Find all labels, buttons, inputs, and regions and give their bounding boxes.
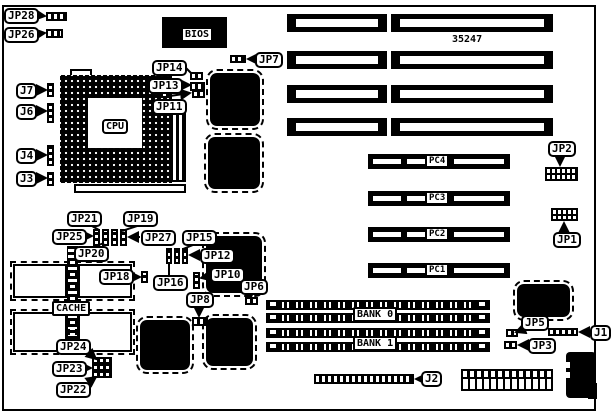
isa-slot-3-left: [287, 85, 387, 103]
jp26-jumper: [46, 29, 63, 38]
jp19-jumper-col2: [120, 229, 127, 246]
jp7-callout: JP7: [255, 52, 283, 68]
cpu-label: CPU: [102, 119, 128, 134]
cache-label: CACHE: [52, 301, 90, 316]
bank0-label: BANK 0: [353, 307, 397, 322]
isa-slot-3-right: [391, 85, 553, 103]
jp14-callout: JP14: [152, 60, 187, 76]
jp12-jumper: [182, 248, 188, 264]
cache-bus-trace: [67, 246, 78, 352]
power-connector: [461, 369, 553, 391]
jp21-callout: JP21: [67, 211, 102, 227]
qfp-chip-4: [140, 320, 190, 370]
jp6-jumper: [245, 297, 258, 305]
jp11-callout: JP11: [152, 99, 187, 115]
jp15-jumper-col1: [166, 248, 172, 264]
j7-jumper: [47, 83, 54, 97]
j2-callout: J2: [421, 371, 442, 387]
jp3-callout: JP3: [528, 338, 556, 354]
jp1-callout: JP1: [553, 232, 581, 248]
pc1-label: PC1: [425, 263, 449, 277]
isa-slot-1-left: [287, 14, 387, 32]
jp8-callout: JP8: [186, 292, 214, 308]
jp14-jumper: [190, 72, 203, 80]
motherboard-diagram: 35247 PC4 PC3 PC2 PC1 BIOS CPU CACHE BAN…: [0, 0, 613, 415]
jp11-jumper: [192, 90, 205, 98]
qfp-chip-jp5: [517, 284, 570, 317]
jp19-callout: JP19: [123, 211, 158, 227]
pc3-label: PC3: [425, 191, 449, 205]
pci-slot-pc1: PC1: [368, 263, 510, 278]
jp22-callout: JP22: [56, 382, 91, 398]
jp10-jumper: [193, 272, 200, 289]
pci-slot-pc2: PC2: [368, 227, 510, 242]
jp21-jumper-col2: [102, 229, 109, 246]
jp27-callout: JP27: [141, 230, 176, 246]
jp19-jumper-col1: [111, 229, 118, 246]
isa-slot-2-right: [391, 51, 553, 69]
jp20-callout: JP20: [74, 246, 109, 262]
j2-header: [314, 374, 414, 384]
jp22-jp24-jumper-row1: [92, 357, 112, 364]
jp1-header: [551, 208, 578, 221]
jp13-callout: JP13: [148, 78, 183, 94]
qfp-chip-1: [210, 73, 260, 126]
j1-callout: J1: [590, 325, 611, 341]
pci-slot-pc4: PC4: [368, 154, 510, 169]
jp24-callout: JP24: [56, 339, 91, 355]
pc4-label: PC4: [425, 154, 449, 168]
bank1-label: BANK 1: [353, 336, 397, 351]
pc2-label: PC2: [425, 227, 449, 241]
qfp-chip-5: [206, 318, 253, 366]
jp22-jp24-jumper-row3: [92, 371, 112, 378]
jp5-callout: JP5: [521, 315, 549, 331]
qfp-chip-2: [208, 137, 260, 189]
jp28-callout: JP28: [4, 8, 39, 24]
jp21-jumper-col1: [93, 229, 100, 246]
jp22-jp24-jumper-row2: [92, 364, 112, 371]
jp7-jumper: [230, 55, 246, 63]
j4-jumper: [47, 145, 54, 166]
jp10-callout: JP10: [210, 267, 245, 283]
jp18-jumper: [141, 271, 148, 283]
part-number-label: 35247: [452, 34, 482, 45]
pci-slot-pc3: PC3: [368, 191, 510, 206]
cache-chip-1: [13, 264, 67, 298]
j3-callout: J3: [16, 171, 37, 187]
jp3-jumper: [504, 341, 517, 349]
jp5-jumper: [506, 329, 518, 337]
j7-callout: J7: [16, 83, 37, 99]
jp2-callout: JP2: [548, 141, 576, 157]
jp6-callout: JP6: [240, 279, 268, 295]
jp18-callout: JP18: [99, 269, 134, 285]
jp15-callout: JP15: [182, 230, 217, 246]
j3-jumper: [47, 172, 54, 186]
jp15-jumper-col2: [174, 248, 180, 264]
cpu-side-module: [171, 104, 186, 182]
jp28-jumper: [46, 12, 67, 21]
j1-header: [548, 328, 578, 336]
jp23-callout: JP23: [52, 361, 87, 377]
jp16-callout: JP16: [153, 275, 188, 291]
jp12-callout: JP12: [200, 248, 235, 264]
jp25-callout: JP25: [52, 229, 87, 245]
isa-slot-4-right: [391, 118, 553, 136]
j6-jumper: [47, 103, 54, 123]
cpu-socket-bottom-bar: [74, 184, 186, 193]
keyboard-din-connector: [566, 352, 596, 398]
isa-slot-2-left: [287, 51, 387, 69]
isa-slot-1-right: [391, 14, 553, 32]
jp26-callout: JP26: [4, 27, 39, 43]
j4-callout: J4: [16, 148, 37, 164]
jp8-jumper: [192, 317, 208, 326]
bios-label: BIOS: [181, 27, 213, 42]
j6-callout: J6: [16, 104, 37, 120]
isa-slot-4-left: [287, 118, 387, 136]
jp2-header: [545, 167, 578, 181]
